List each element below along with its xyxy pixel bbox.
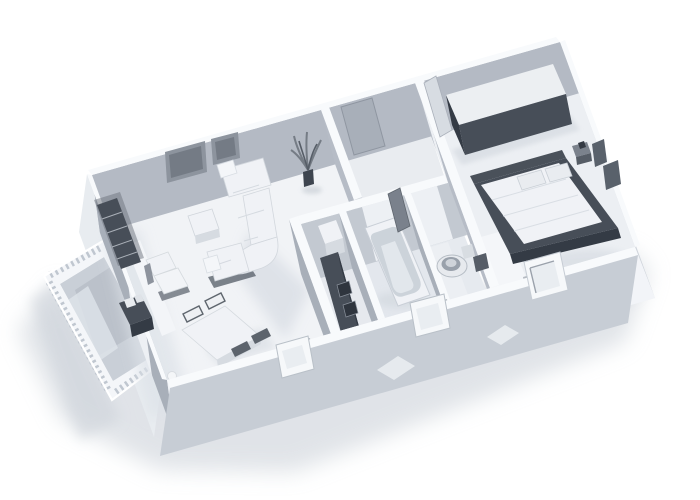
plant-pot xyxy=(303,169,314,187)
plant-cast-shadow xyxy=(302,186,322,194)
floor-plan-svg xyxy=(0,0,700,500)
floor-plan-render xyxy=(0,0,700,500)
toilet-bowl xyxy=(446,259,457,267)
